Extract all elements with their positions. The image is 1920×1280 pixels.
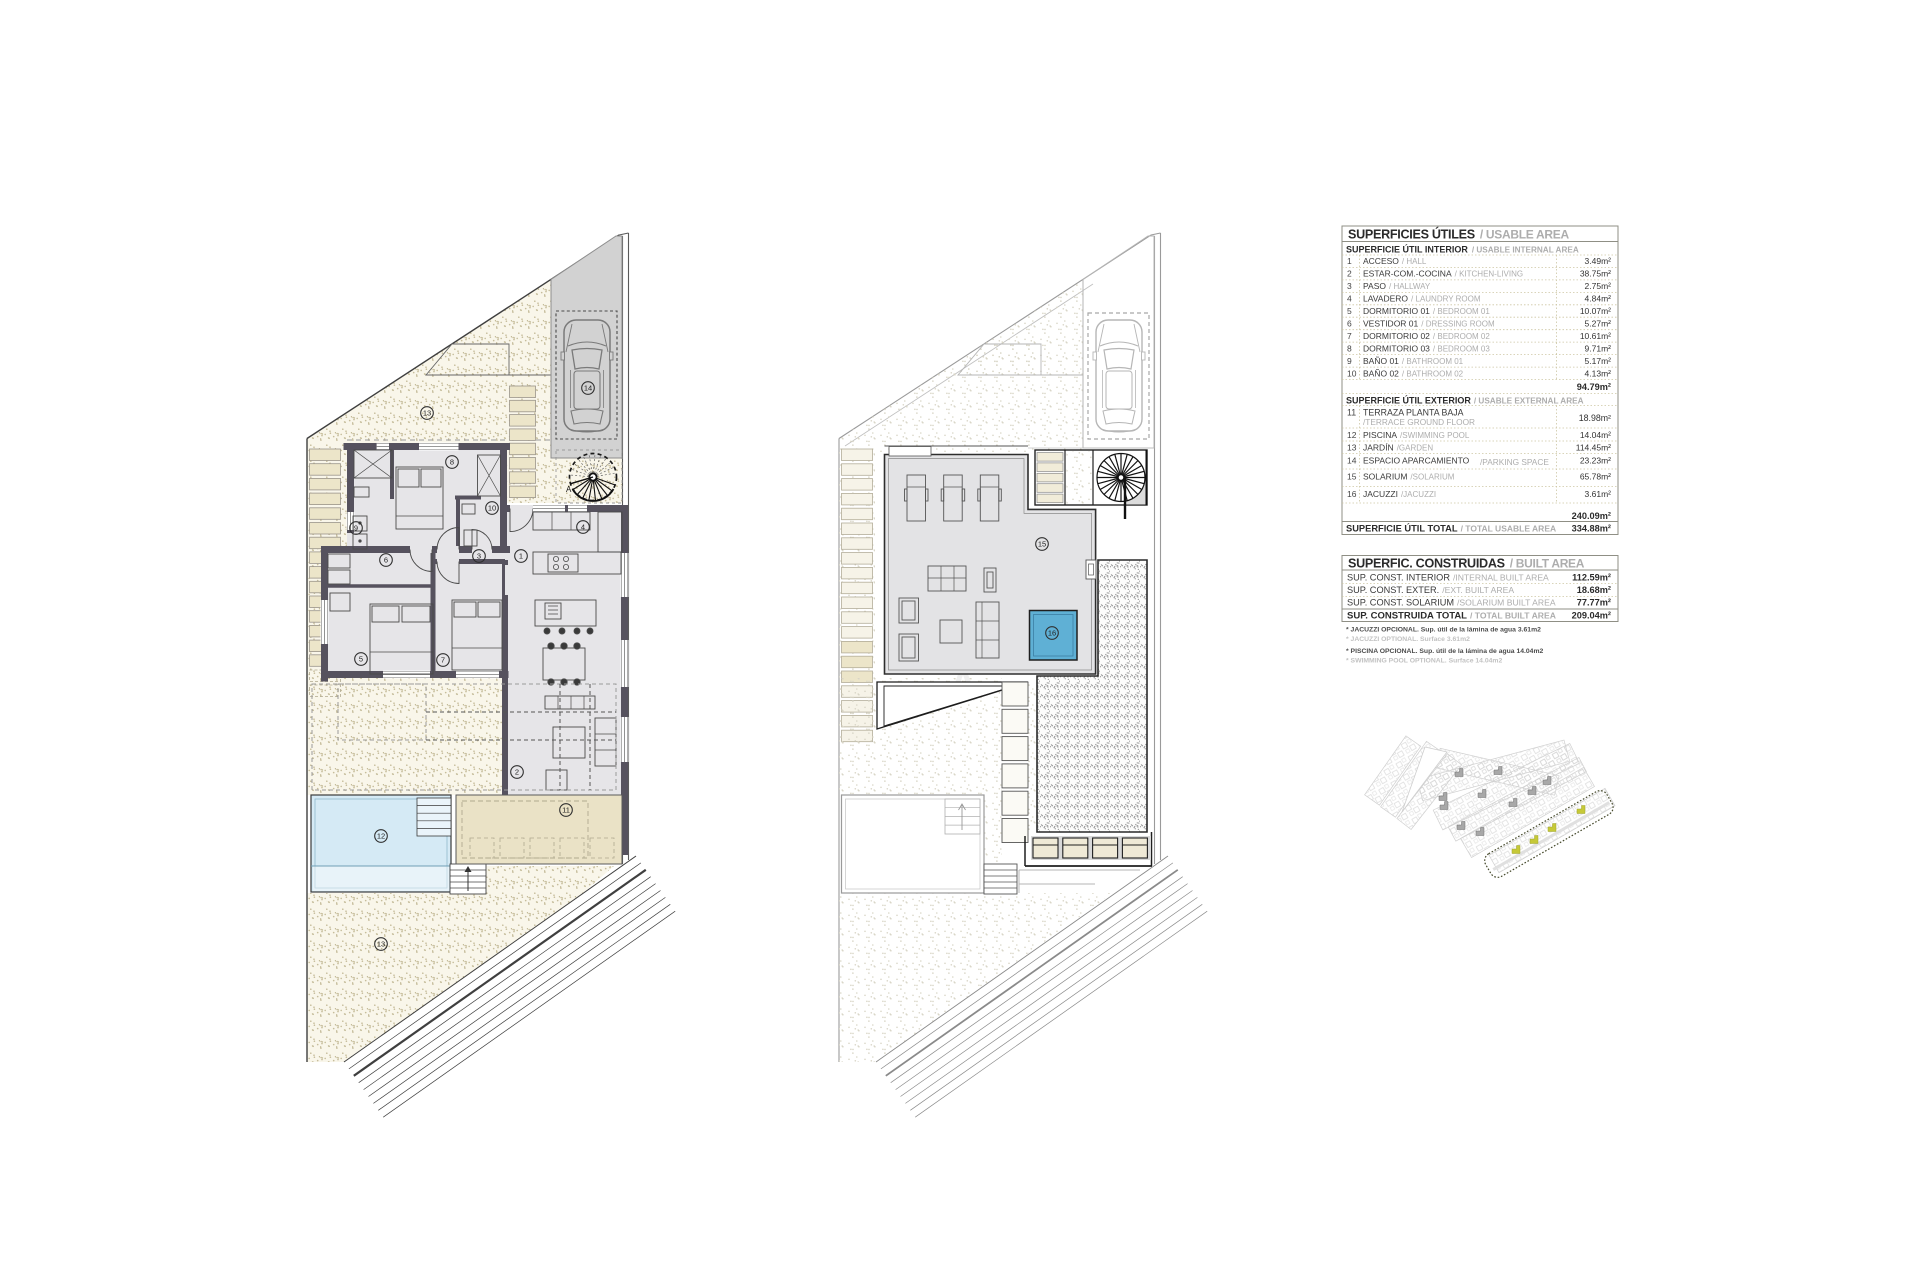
svg-text:* JACUZZI OPCIONAL. Sup. útil: * JACUZZI OPCIONAL. Sup. útil de la lámi… xyxy=(1346,627,1541,634)
svg-text:38.75m²: 38.75m² xyxy=(1580,269,1611,279)
svg-text:TERRAZA PLANTA BAJA: TERRAZA PLANTA BAJA xyxy=(1363,408,1464,418)
svg-text:SUPERFICIE ÚTIL INTERIOR/ USAB: SUPERFICIE ÚTIL INTERIOR/ USABLE INTERNA… xyxy=(1346,244,1579,255)
svg-text:DORMITORIO 03/ BEDROOM 03: DORMITORIO 03/ BEDROOM 03 xyxy=(1363,343,1490,353)
svg-text:4.84m²: 4.84m² xyxy=(1585,294,1612,304)
svg-text:4: 4 xyxy=(1347,294,1352,304)
svg-text:BAÑO 01/ BATHROOM 01: BAÑO 01/ BATHROOM 01 xyxy=(1363,356,1464,366)
svg-text:12: 12 xyxy=(377,832,385,841)
svg-text:7: 7 xyxy=(1347,331,1352,341)
svg-text:6: 6 xyxy=(384,556,388,565)
svg-text:3.61m²: 3.61m² xyxy=(1585,489,1612,499)
svg-text:9.71m²: 9.71m² xyxy=(1585,343,1612,353)
svg-text:13: 13 xyxy=(377,940,385,949)
svg-text:11: 11 xyxy=(562,806,570,815)
svg-text:12: 12 xyxy=(1347,430,1357,440)
svg-text:18.98m²: 18.98m² xyxy=(1579,413,1611,423)
svg-text:9: 9 xyxy=(1347,356,1352,366)
svg-text:4: 4 xyxy=(581,523,585,532)
svg-text:2: 2 xyxy=(515,768,519,777)
svg-text:* SWIMMING POOL OPTIONAL. Surf: * SWIMMING POOL OPTIONAL. Surface 14.04m… xyxy=(1346,658,1502,665)
svg-text:8: 8 xyxy=(450,458,454,467)
svg-text:6: 6 xyxy=(1347,319,1352,329)
svg-text:VESTIDOR 01/ DRESSING ROOM: VESTIDOR 01/ DRESSING ROOM xyxy=(1363,319,1495,329)
svg-text:SUP. CONST. SOLARIUM/SOLARIUM: SUP. CONST. SOLARIUM/SOLARIUM BUILT AREA xyxy=(1347,598,1556,608)
svg-text:SUP. CONST. INTERIOR/INTERNAL: SUP. CONST. INTERIOR/INTERNAL BUILT AREA xyxy=(1347,573,1549,583)
svg-text:1: 1 xyxy=(519,552,523,561)
svg-text:94.79m²: 94.79m² xyxy=(1577,382,1611,392)
svg-text:10: 10 xyxy=(488,504,496,513)
svg-text:14: 14 xyxy=(584,384,592,393)
svg-text:10.07m²: 10.07m² xyxy=(1580,306,1611,316)
svg-text:10.61m²: 10.61m² xyxy=(1580,331,1611,341)
svg-text:ESPACIO APARCAMIENTO: ESPACIO APARCAMIENTO xyxy=(1363,456,1470,466)
svg-text:A: A xyxy=(566,485,572,494)
svg-text:9: 9 xyxy=(354,524,358,533)
svg-text:4.13m²: 4.13m² xyxy=(1585,368,1612,378)
svg-text:DORMITORIO 02/ BEDROOM 02: DORMITORIO 02/ BEDROOM 02 xyxy=(1363,331,1490,341)
svg-text:334.88m²: 334.88m² xyxy=(1572,524,1611,534)
svg-text:7: 7 xyxy=(441,656,445,665)
svg-text:16: 16 xyxy=(1347,489,1357,499)
svg-text:DORMITORIO 01/ BEDROOM 01: DORMITORIO 01/ BEDROOM 01 xyxy=(1363,306,1490,316)
svg-text:3.49m²: 3.49m² xyxy=(1585,256,1612,266)
svg-text:15: 15 xyxy=(1038,540,1046,549)
svg-text:5.17m²: 5.17m² xyxy=(1585,356,1612,366)
svg-text:209.04m²: 209.04m² xyxy=(1572,611,1611,621)
svg-text:15: 15 xyxy=(1347,472,1357,482)
svg-text:SUPERFICIE ÚTIL TOTAL/ TOTAL U: SUPERFICIE ÚTIL TOTAL/ TOTAL USABLE AREA xyxy=(1346,523,1556,534)
svg-text:10: 10 xyxy=(1347,368,1357,378)
svg-text:/TERRACE GROUND FLOOR: /TERRACE GROUND FLOOR xyxy=(1363,417,1475,427)
svg-text:PASO/ HALLWAY: PASO/ HALLWAY xyxy=(1363,281,1431,291)
svg-text:SUPERFICIE ÚTIL EXTERIOR/ USAB: SUPERFICIE ÚTIL EXTERIOR/ USABLE EXTERNA… xyxy=(1346,395,1584,406)
svg-text:8: 8 xyxy=(1347,343,1352,353)
svg-text:65.78m²: 65.78m² xyxy=(1580,472,1611,482)
svg-text:114.45m²: 114.45m² xyxy=(1576,443,1611,453)
svg-text:ESTAR-COM.-COCINA/ KITCHEN-LIV: ESTAR-COM.-COCINA/ KITCHEN-LIVING xyxy=(1363,269,1523,279)
svg-text:* PISCINA OPCIONAL. Sup. útil: * PISCINA OPCIONAL. Sup. útil de la lámi… xyxy=(1346,648,1544,655)
svg-text:5: 5 xyxy=(1347,306,1352,316)
svg-text:LAVADERO/ LAUNDRY ROOM: LAVADERO/ LAUNDRY ROOM xyxy=(1363,294,1481,304)
svg-text:SUPERFIC. CONSTRUIDAS/ BUILT A: SUPERFIC. CONSTRUIDAS/ BUILT AREA xyxy=(1348,557,1585,571)
svg-text:PISCINA/SWIMMING POOL: PISCINA/SWIMMING POOL xyxy=(1363,430,1470,440)
svg-text:240.09m²: 240.09m² xyxy=(1572,511,1611,521)
svg-text:5.27m²: 5.27m² xyxy=(1585,319,1612,329)
svg-text:SUPERFICIES ÚTILES/ USABLE ARE: SUPERFICIES ÚTILES/ USABLE AREA xyxy=(1348,227,1569,242)
svg-text:ACCESO/ HALL: ACCESO/ HALL xyxy=(1363,256,1427,266)
svg-text:1: 1 xyxy=(1347,256,1352,266)
svg-text:112.59m²: 112.59m² xyxy=(1572,573,1611,583)
svg-text:18.68m²: 18.68m² xyxy=(1577,585,1611,595)
svg-text:11: 11 xyxy=(1347,408,1356,418)
svg-text:14.04m²: 14.04m² xyxy=(1580,430,1611,440)
svg-text:* JACUZZI OPTIONAL. Surface 3.: * JACUZZI OPTIONAL. Surface 3.61m2 xyxy=(1346,636,1470,643)
svg-text:16: 16 xyxy=(1048,629,1056,638)
svg-text:SUP. CONST. EXTER./EXT. BUILT: SUP. CONST. EXTER./EXT. BUILT AREA xyxy=(1347,585,1514,595)
svg-text:23.23m²: 23.23m² xyxy=(1580,456,1611,466)
svg-text:/PARKING SPACE: /PARKING SPACE xyxy=(1480,457,1549,467)
svg-text:SUP. CONSTRUIDA TOTAL/ TOTAL B: SUP. CONSTRUIDA TOTAL/ TOTAL BUILT AREA xyxy=(1347,611,1556,622)
svg-text:77.77m²: 77.77m² xyxy=(1577,598,1611,608)
svg-text:13: 13 xyxy=(423,409,431,418)
svg-text:3: 3 xyxy=(477,552,481,561)
svg-text:2: 2 xyxy=(1347,269,1352,279)
svg-text:13: 13 xyxy=(1347,443,1357,453)
svg-text:5: 5 xyxy=(359,655,363,664)
svg-text:JARDÍN/GARDEN: JARDÍN/GARDEN xyxy=(1363,443,1433,453)
svg-text:3: 3 xyxy=(1347,281,1352,291)
svg-text:BAÑO 02/ BATHROOM 02: BAÑO 02/ BATHROOM 02 xyxy=(1363,368,1464,378)
svg-text:2.75m²: 2.75m² xyxy=(1585,281,1612,291)
svg-text:14: 14 xyxy=(1347,456,1357,466)
